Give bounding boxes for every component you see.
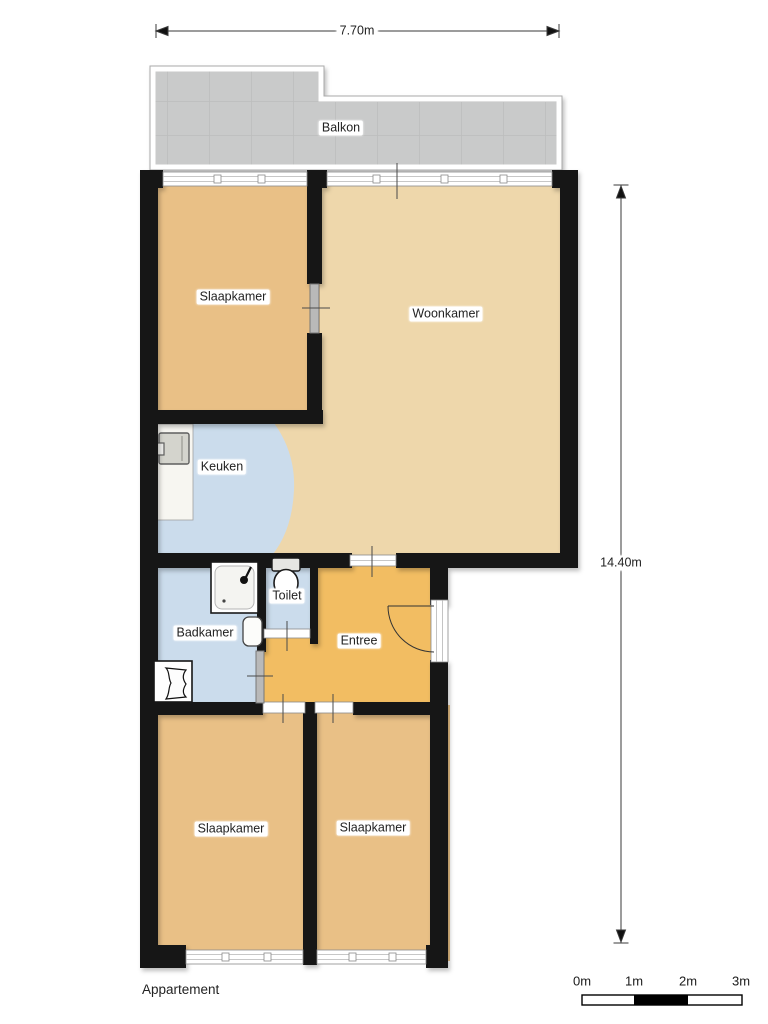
window (327, 172, 552, 186)
kitchen-counter (155, 424, 193, 520)
width-dimension-label: 7.70m (337, 24, 378, 39)
plan-title: Appartement (142, 982, 219, 997)
door-opening (263, 702, 305, 713)
floorplan-drawing (0, 0, 768, 1024)
room-label-slaapkamer-3: Slaapkamer (337, 821, 410, 836)
scale-label-1m: 1m (625, 974, 643, 989)
window (317, 950, 426, 964)
floorplan-page: Balkon Slaapkamer Woonkamer Keuken Badka… (0, 0, 768, 1024)
laundry-fixture-icon (154, 661, 192, 702)
room-label-slaapkamer-1: Slaapkamer (197, 290, 270, 305)
entry-door-frame (431, 600, 448, 662)
room-label-badkamer: Badkamer (174, 626, 237, 641)
kitchen-appliance-icon (155, 433, 189, 464)
room-label-balkon: Balkon (319, 121, 363, 136)
room-label-entree: Entree (338, 634, 381, 649)
door-opening (315, 702, 353, 713)
scale-bar (582, 995, 742, 1005)
height-dimension-label: 14.40m (597, 556, 645, 571)
balcony-area (150, 66, 562, 170)
room-label-toilet: Toilet (269, 589, 304, 604)
room-label-keuken: Keuken (198, 460, 246, 475)
washbasin-icon (243, 617, 262, 646)
window (163, 172, 307, 186)
scale-label-0m: 0m (573, 974, 591, 989)
door-opening (350, 555, 396, 566)
room-label-woonkamer: Woonkamer (409, 307, 482, 322)
badkamer-door (256, 651, 264, 703)
shower-icon (211, 562, 258, 613)
scale-label-2m: 2m (679, 974, 697, 989)
room-label-slaapkamer-2: Slaapkamer (195, 822, 268, 837)
scale-label-3m: 3m (732, 974, 750, 989)
window (186, 950, 303, 964)
